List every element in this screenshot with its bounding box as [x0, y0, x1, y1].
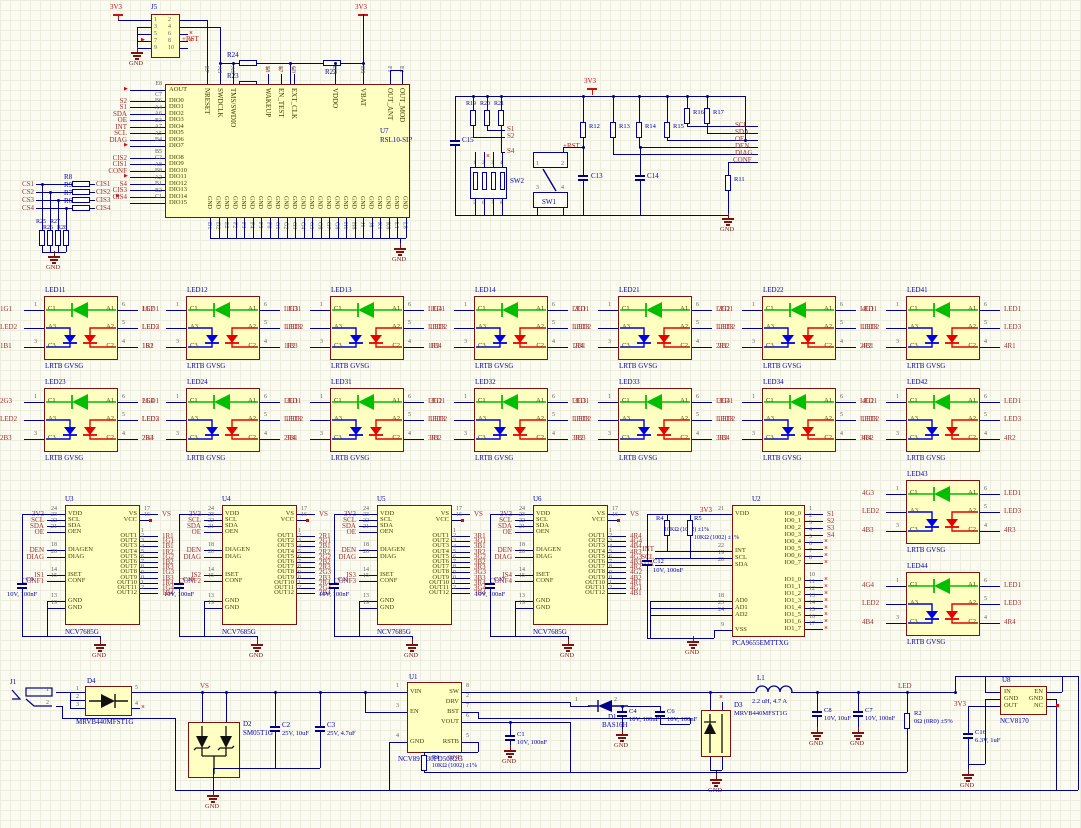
pin-name: A3	[766, 416, 774, 423]
pin-number: 6	[984, 486, 987, 492]
wire	[506, 753, 514, 755]
pin-name: GND	[232, 196, 238, 209]
net-label: OE	[735, 136, 744, 143]
resistor-R6[interactable]	[72, 205, 90, 211]
pin-number: 5	[264, 412, 267, 418]
pin-number: 13	[363, 593, 369, 599]
pin-number: 20	[363, 549, 369, 555]
part-number: LRTB GVSG	[763, 455, 801, 462]
wire	[455, 215, 728, 216]
part-number: LRTB GVSG	[331, 363, 369, 370]
junction-dot	[49, 191, 52, 194]
pin-designator: H8	[351, 222, 357, 229]
no-connect-dot	[461, 519, 464, 522]
wire	[640, 147, 641, 175]
designator: U2	[752, 496, 761, 503]
wire	[598, 420, 618, 421]
gnd-label: GND	[809, 741, 823, 748]
pin-number: 3	[896, 431, 899, 437]
switch-lever-icon[interactable]	[540, 166, 562, 194]
designator: LED14	[475, 287, 496, 294]
value-label: 25V, 10uF	[282, 731, 309, 738]
pin-designator: G4	[300, 222, 306, 229]
pin-number: 1	[34, 302, 37, 308]
wire	[260, 439, 280, 440]
junction-dot	[509, 721, 512, 724]
wire	[338, 218, 339, 238]
wire	[667, 536, 668, 551]
pin-name: GND	[359, 196, 365, 209]
resistor-R14[interactable]	[636, 122, 642, 138]
pin-designator: A7	[155, 124, 162, 130]
pin-number: 3	[320, 431, 323, 437]
resistor-R20[interactable]	[484, 110, 490, 126]
wire	[628, 706, 660, 707]
wire	[90, 192, 95, 193]
resistor[interactable]	[55, 230, 61, 246]
junction-dot	[319, 691, 322, 694]
pin-designator: L1	[393, 222, 399, 229]
pin-number: 1	[608, 394, 611, 400]
wire	[968, 738, 969, 772]
resistor-R13[interactable]	[610, 122, 616, 138]
net-label: CIS4	[96, 205, 110, 212]
designator: LED31	[331, 379, 352, 386]
wire	[404, 328, 424, 329]
net-label: 1B2	[142, 343, 154, 350]
wire	[886, 347, 906, 348]
designator: R4	[656, 516, 664, 523]
wire	[570, 706, 590, 707]
wire	[166, 347, 186, 348]
pin-designator: A1	[229, 66, 235, 73]
wire	[907, 692, 908, 713]
gnd-label: GND	[129, 61, 143, 68]
gnd-label: GND	[404, 653, 418, 660]
designator: R28	[57, 225, 67, 231]
wire	[985, 699, 986, 764]
pin-name: C2	[392, 343, 400, 350]
no-connect-icon: ×	[278, 66, 282, 73]
pin-name: GND	[249, 196, 255, 209]
dip-rocker[interactable]	[482, 172, 487, 190]
net-label: 4B2	[862, 435, 874, 442]
resistor-R1[interactable]	[421, 755, 427, 771]
net-label: OE	[35, 529, 44, 536]
pin-number: 6	[696, 394, 699, 400]
wire	[655, 565, 732, 566]
pin-name: C1	[334, 398, 342, 405]
net-label: 3G1	[286, 398, 298, 405]
pin-name: A3	[766, 324, 774, 331]
wire	[94, 644, 106, 646]
gnd-label: GND	[960, 783, 974, 790]
wire	[853, 711, 863, 713]
wire	[251, 644, 263, 646]
no-connect-icon: ×	[141, 704, 145, 711]
junction-dot	[364, 691, 367, 694]
pin-number: 6	[122, 394, 125, 400]
wire	[137, 27, 138, 48]
pin-number: 21	[363, 524, 369, 530]
wire	[454, 328, 474, 329]
net-label: LED2	[0, 416, 17, 423]
junction-dot	[472, 95, 475, 98]
wire	[886, 623, 906, 624]
resistor-R12[interactable]	[580, 122, 586, 138]
pin-name: A3	[190, 324, 198, 331]
pin-name: C3	[766, 435, 774, 442]
wire	[515, 601, 516, 636]
pin-name: C3	[910, 527, 918, 534]
pin-number: 6	[466, 713, 469, 719]
wire	[478, 702, 570, 703]
net-label: GND	[448, 755, 462, 762]
wire	[647, 638, 714, 639]
tvs-diode-icon[interactable]	[188, 722, 240, 778]
pin-number: 4	[984, 615, 987, 621]
pin-number: 20	[519, 549, 525, 555]
junction-dot	[201, 691, 204, 694]
wire	[617, 711, 627, 713]
junction-dot	[744, 139, 747, 142]
pin-designator: B1	[155, 181, 162, 187]
pin-name: C2	[680, 343, 688, 350]
wire	[980, 623, 1000, 624]
wire	[454, 402, 474, 403]
resistor-R17[interactable]	[704, 108, 710, 124]
gnd-label: GND	[685, 650, 699, 657]
wire	[166, 310, 186, 311]
wire	[70, 708, 85, 709]
wire	[365, 692, 366, 712]
net-label: DIAG	[339, 554, 357, 561]
dip-rocker[interactable]	[491, 172, 496, 190]
pin-name: C3	[478, 435, 486, 442]
pin-name: GND	[215, 196, 221, 209]
wire	[639, 96, 640, 122]
wire	[667, 96, 668, 122]
pin-number: 18	[51, 542, 57, 548]
resistor-R8[interactable]	[72, 181, 90, 187]
resistor[interactable]	[47, 230, 53, 246]
pin-name: C1	[478, 306, 486, 313]
pin-name: C3	[334, 435, 342, 442]
pin-name: A3	[622, 324, 630, 331]
pin-number: 4	[984, 339, 987, 345]
pin-name: OUT12	[117, 590, 137, 597]
dip-rocker[interactable]	[500, 172, 505, 190]
net-label: CS1	[22, 181, 34, 188]
pin-name: GND	[223, 196, 229, 209]
pin-number: 19	[363, 600, 369, 606]
wire	[548, 328, 568, 329]
pin-name: A3	[910, 600, 918, 607]
pin-name: C1	[766, 398, 774, 405]
resistor-R2[interactable]	[904, 713, 910, 729]
part-number: PCA9655EMTTXG	[732, 640, 789, 647]
pin-name: A2	[680, 416, 688, 423]
net-label: LED1	[1004, 490, 1021, 497]
wire	[166, 420, 186, 421]
value-label: 2.2 uH, 4.7 A	[752, 699, 787, 706]
pin-number: 12	[450, 585, 456, 591]
pin-number: 11	[809, 579, 815, 585]
pin-number: 9	[154, 45, 157, 51]
inductor-icon[interactable]	[755, 683, 793, 693]
part-number: NCV8170	[1000, 718, 1029, 725]
designator: J5	[151, 4, 157, 11]
schematic-canvas[interactable]: 3V3J512345678910GND▶××+RSTR24R23R223V3U7…	[0, 0, 1081, 828]
wire	[504, 750, 516, 752]
net-label: 4B1	[862, 343, 874, 350]
resistor-R5[interactable]	[687, 520, 693, 536]
net-label: VS	[200, 683, 209, 690]
resistor-R21[interactable]	[498, 110, 504, 126]
wire	[227, 218, 228, 238]
wire	[985, 699, 1000, 700]
part-number: MRVB440MFST1G	[734, 711, 787, 718]
resistor-R16[interactable]	[684, 108, 690, 124]
wire	[175, 718, 176, 790]
pin-name: GND	[393, 196, 399, 209]
net-label: 4R2	[1004, 435, 1016, 442]
pin-number: 16	[456, 512, 462, 518]
junction-dot	[639, 146, 642, 149]
net-label: DIAG	[495, 554, 513, 561]
wire	[310, 420, 330, 421]
wire	[90, 184, 95, 185]
pin-number: 1	[896, 486, 899, 492]
wire	[564, 647, 572, 649]
pin-name: OEN	[225, 529, 238, 536]
pin-name: C3	[622, 435, 630, 442]
net-label: LED2	[574, 324, 591, 331]
resistor-R24[interactable]	[239, 60, 257, 66]
wire	[304, 218, 305, 238]
resistor-R11[interactable]	[725, 175, 731, 191]
pin-number: 19	[519, 600, 525, 606]
pin-number: 3	[154, 24, 157, 30]
wire	[836, 328, 856, 329]
wire	[478, 692, 755, 693]
gnd-label: GND	[46, 265, 60, 272]
wire	[397, 218, 398, 238]
designator: C12	[653, 559, 664, 566]
pin-name: OUT12	[274, 590, 294, 597]
resistor-R15[interactable]	[664, 122, 670, 138]
pin-name: OUT12	[585, 590, 605, 597]
resistor[interactable]	[39, 230, 45, 246]
wire	[260, 328, 280, 329]
pin-number: 4	[696, 339, 699, 345]
pin-designator: D2	[215, 222, 221, 229]
junction-dot	[41, 183, 44, 186]
wire	[140, 520, 149, 521]
junction-dot	[582, 95, 585, 98]
designator: C17	[494, 577, 505, 584]
pin-name: GND	[266, 196, 272, 209]
pin-name: C1	[190, 398, 198, 405]
pin-number: 1	[46, 687, 49, 693]
pin-number: 1	[76, 686, 79, 692]
designator: C8	[824, 708, 832, 715]
wire	[310, 402, 330, 403]
wire	[692, 347, 712, 348]
net-label: OE	[503, 529, 512, 536]
wire	[583, 147, 584, 175]
net-label: 4G4	[862, 582, 874, 589]
wire	[707, 124, 708, 133]
pin-name: A1	[968, 490, 976, 497]
pin-name: C2	[536, 343, 544, 350]
no-connect-icon: ×	[824, 625, 828, 632]
junction-dot	[954, 691, 957, 694]
resistor-R7[interactable]	[72, 197, 90, 203]
wire	[47, 557, 65, 558]
pin-number: 3	[76, 702, 79, 708]
wire	[389, 218, 390, 238]
designator: R12	[589, 124, 600, 131]
pin-name: GND	[300, 196, 306, 209]
wire	[424, 772, 907, 773]
net-label: 3V3	[700, 507, 712, 514]
pin-designator: F3	[240, 222, 246, 228]
wire	[118, 439, 138, 440]
pin-number: 7	[466, 703, 469, 709]
designator: R7	[64, 190, 72, 197]
net-label: CONF	[733, 157, 752, 164]
pin-name: A2	[824, 416, 832, 423]
diode-icon[interactable]	[701, 710, 731, 757]
pin-name: A2	[392, 324, 400, 331]
wire	[478, 742, 479, 752]
pin-name: OUT12	[429, 590, 449, 597]
wire	[728, 191, 729, 215]
wire	[655, 711, 665, 713]
pin-number: 2	[466, 693, 469, 699]
pin-name: A2	[248, 416, 256, 423]
pin-name: A1	[106, 306, 114, 313]
pin-number: 19	[51, 600, 57, 606]
wire	[805, 521, 823, 522]
part-number: RSL10-SIP	[380, 137, 412, 144]
wire	[478, 718, 690, 719]
wire	[180, 48, 188, 49]
wire	[742, 347, 762, 348]
wire	[372, 218, 373, 238]
wire	[462, 692, 478, 693]
pin-number: 13	[519, 593, 525, 599]
wire	[805, 563, 823, 564]
part-number: NCV7685G	[222, 629, 256, 636]
designator: R14	[645, 124, 656, 131]
wire	[660, 724, 690, 725]
wire	[310, 439, 330, 440]
net-label: 4G2	[862, 398, 874, 405]
net-label: +RST	[182, 36, 199, 43]
pin-number: 6	[552, 394, 555, 400]
net-label: 4G3	[862, 490, 874, 497]
junction-dot	[666, 95, 669, 98]
value-label: 10V, 10uF	[824, 716, 851, 723]
wire	[204, 557, 222, 558]
wire	[389, 742, 390, 790]
wire	[502, 199, 503, 215]
wire	[450, 140, 460, 142]
wire	[980, 420, 1000, 421]
wire	[179, 514, 204, 515]
wire	[548, 310, 568, 311]
pin-number: 4	[984, 523, 987, 529]
wire	[253, 218, 254, 238]
pin-name: A1	[968, 582, 976, 589]
pin-name: VOUT	[441, 719, 459, 726]
pin-number: 1	[396, 683, 399, 689]
pin-name: C1	[334, 306, 342, 313]
net-label: OE	[347, 529, 356, 536]
wire	[583, 96, 584, 122]
resistor-R19[interactable]	[470, 110, 476, 126]
diode-icon[interactable]	[85, 686, 132, 716]
pin-number: 12	[295, 585, 301, 591]
pin-number: 1	[154, 17, 157, 23]
pin-name: A1	[536, 398, 544, 405]
wire	[515, 557, 533, 558]
pin-number: 16	[301, 512, 307, 518]
net-label: CIS2	[96, 189, 110, 196]
pin-number: 14	[809, 600, 815, 606]
wire	[47, 608, 65, 609]
net-label: VS	[319, 511, 328, 518]
wire	[616, 734, 628, 736]
wire	[1062, 676, 1063, 692]
wire	[537, 208, 538, 215]
pin-name: C1	[48, 306, 56, 313]
pin-number: 16	[809, 614, 815, 620]
net-label: LED2	[862, 416, 879, 423]
net-label: LED3	[1004, 508, 1021, 515]
pin-name: A2	[536, 416, 544, 423]
pin-number: 1	[176, 394, 179, 400]
pin-name: VCC	[281, 517, 294, 524]
wire	[47, 581, 65, 582]
wire	[226, 692, 227, 722]
pin-designator: B4	[155, 137, 162, 143]
wire	[515, 608, 533, 609]
pin-designator: F6	[266, 222, 272, 228]
net-label: LED2	[718, 324, 735, 331]
wire	[478, 722, 510, 723]
wire	[454, 420, 474, 421]
net-label: VS	[474, 511, 483, 518]
net-label: LED3	[1004, 416, 1021, 423]
designator: C6	[667, 709, 675, 716]
designator: C1	[517, 732, 525, 739]
wire	[968, 706, 1000, 707]
pin-name: GND	[368, 196, 374, 209]
pin-number: 4	[840, 339, 843, 345]
wire	[598, 328, 618, 329]
resistor-R9[interactable]	[72, 189, 90, 195]
pin-name: A2	[968, 600, 976, 607]
junction-dot	[500, 95, 503, 98]
resistor[interactable]	[63, 230, 69, 246]
wire	[47, 601, 48, 636]
pin-designator: H1	[342, 222, 348, 229]
dip-rocker[interactable]	[473, 172, 478, 190]
wire	[270, 726, 280, 728]
